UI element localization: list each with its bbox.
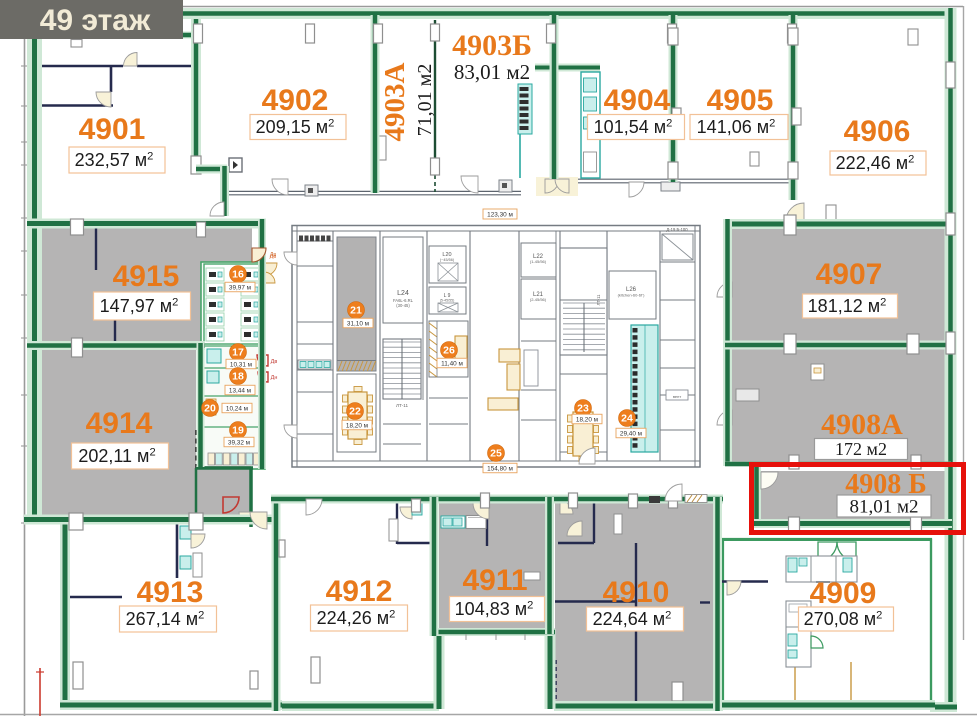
svg-text:270,08 м2: 270,08 м2 xyxy=(804,609,883,629)
svg-text:19: 19 xyxy=(232,425,244,437)
svg-text:4903А: 4903А xyxy=(379,62,411,141)
svg-text:ЛТ-11: ЛТ-11 xyxy=(396,403,409,408)
svg-text:232,57 м2: 232,57 м2 xyxy=(75,150,154,170)
svg-text:21: 21 xyxy=(350,305,362,317)
svg-text:81,01 м2: 81,01 м2 xyxy=(849,496,918,517)
svg-text:202,11 м2: 202,11 м2 xyxy=(78,446,155,466)
svg-text:104,83 м2: 104,83 м2 xyxy=(455,599,534,619)
svg-text:10,24 м: 10,24 м xyxy=(226,405,248,412)
svg-text:4913: 4913 xyxy=(137,576,204,609)
svg-text:11,40 м: 11,40 м xyxy=(441,360,463,367)
svg-text:Дв: Дв xyxy=(270,252,277,258)
svg-text:10,31 м: 10,31 м xyxy=(230,361,252,368)
svg-text:147,97 м2: 147,97 м2 xyxy=(100,296,179,316)
svg-text:18: 18 xyxy=(232,371,244,383)
svg-text:(30-45): (30-45) xyxy=(396,303,410,308)
svg-text:17: 17 xyxy=(232,347,244,359)
svg-text:83,01 м2: 83,01 м2 xyxy=(454,60,530,84)
svg-text:ЛТ-11: ЛТ-11 xyxy=(596,294,601,306)
svg-text:172 м2: 172 м2 xyxy=(835,439,887,459)
svg-text:209,15 м2: 209,15 м2 xyxy=(256,117,335,137)
svg-text:4911: 4911 xyxy=(462,564,527,597)
svg-text:4903Б: 4903Б xyxy=(452,29,532,62)
svg-text:13,44 м: 13,44 м xyxy=(229,387,251,394)
svg-text:267,14 м2: 267,14 м2 xyxy=(126,609,205,629)
svg-text:222,46 м2: 222,46 м2 xyxy=(836,153,915,173)
svg-text:22: 22 xyxy=(349,406,361,418)
svg-text:39,97 м: 39,97 м xyxy=(229,284,251,291)
svg-text:Д-19 Б-100: Д-19 Б-100 xyxy=(666,227,688,232)
svg-text:Дв: Дв xyxy=(271,359,278,365)
svg-text:39,32 м: 39,32 м xyxy=(228,439,250,446)
svg-text:24: 24 xyxy=(621,413,633,425)
svg-text:Дн: Дн xyxy=(271,375,278,381)
svg-text:(~45/56): (~45/56) xyxy=(440,258,455,262)
svg-text:вент: вент xyxy=(673,394,682,399)
svg-text:49 этаж: 49 этаж xyxy=(40,4,151,37)
svg-text:101,54 м2: 101,54 м2 xyxy=(594,117,673,137)
svg-text:4908А: 4908А xyxy=(821,408,903,441)
svg-text:224,26 м2: 224,26 м2 xyxy=(317,608,396,628)
svg-text:181,12 м2: 181,12 м2 xyxy=(808,296,887,316)
svg-text:4907: 4907 xyxy=(816,258,883,291)
svg-text:224,64 м2: 224,64 м2 xyxy=(593,609,672,629)
svg-text:25: 25 xyxy=(490,448,502,460)
svg-text:(kitchen-60-6Г): (kitchen-60-6Г) xyxy=(618,293,646,298)
svg-text:4904: 4904 xyxy=(604,84,671,117)
svg-text:L24: L24 xyxy=(397,290,409,297)
svg-text:4909: 4909 xyxy=(810,577,877,610)
svg-text:4915: 4915 xyxy=(113,260,180,293)
svg-text:26: 26 xyxy=(443,345,455,357)
svg-text:71,01 м2: 71,01 м2 xyxy=(414,64,436,137)
svg-text:4910: 4910 xyxy=(603,576,670,609)
svg-text:4906: 4906 xyxy=(844,115,911,148)
svg-text:20: 20 xyxy=(204,403,216,415)
svg-text:(5-45/55): (5-45/55) xyxy=(440,299,455,303)
svg-text:29,40 м: 29,40 м xyxy=(620,430,642,437)
svg-text:4914: 4914 xyxy=(86,407,153,440)
svg-text:4905: 4905 xyxy=(707,84,774,117)
svg-text:18,20 м: 18,20 м xyxy=(346,422,368,429)
svg-text:154,80 м: 154,80 м xyxy=(487,465,513,472)
svg-text:23: 23 xyxy=(577,403,589,415)
svg-text:31,10 м: 31,10 м xyxy=(347,320,369,327)
svg-text:4901: 4901 xyxy=(79,113,146,146)
svg-text:18,20 м: 18,20 м xyxy=(576,416,598,423)
svg-text:4912: 4912 xyxy=(326,575,393,608)
svg-text:(2-45/56): (2-45/56) xyxy=(530,297,547,302)
svg-text:(1-45/56): (1-45/56) xyxy=(530,259,547,264)
svg-text:4902: 4902 xyxy=(262,84,329,117)
svg-text:16: 16 xyxy=(232,269,244,281)
svg-text:141,06 м2: 141,06 м2 xyxy=(697,117,776,137)
svg-text:123,30 м: 123,30 м xyxy=(487,211,513,218)
